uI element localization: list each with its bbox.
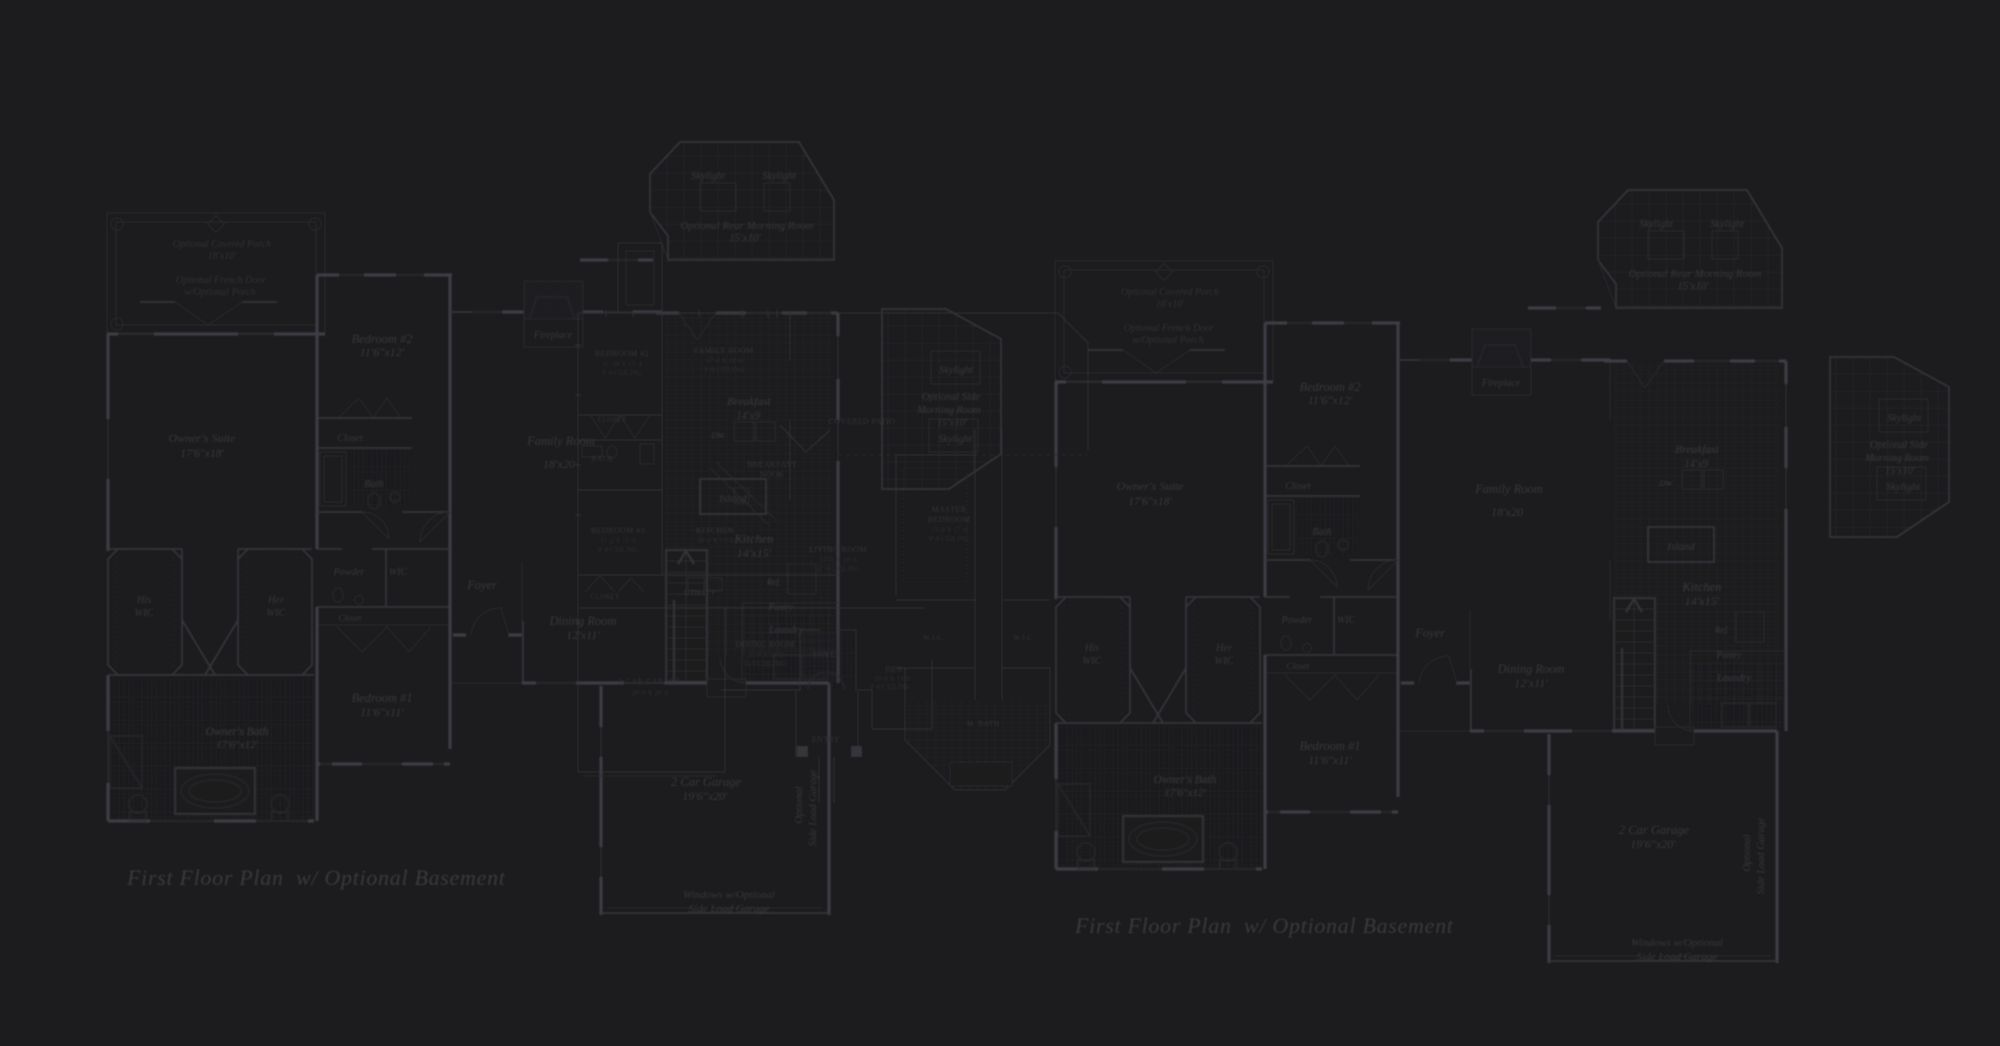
svg-text:9'-0 CEILING: 9'-0 CEILING bbox=[929, 535, 969, 543]
svg-text:BEDROOM: BEDROOM bbox=[928, 515, 971, 524]
svg-text:11'-10 X 13'-4: 11'-10 X 13'-4 bbox=[602, 360, 642, 368]
svg-text:M. BATH: M. BATH bbox=[967, 719, 1000, 728]
svg-text:DINING ROOM: DINING ROOM bbox=[736, 640, 795, 649]
svg-text:9'-0 CEILING: 9'-0 CEILING bbox=[598, 546, 638, 554]
svg-text:BATH: BATH bbox=[591, 454, 612, 463]
svg-text:17'-0 X 19'-0: 17'-0 X 19'-0 bbox=[706, 357, 743, 365]
svg-text:10'-0 X 11'-0: 10'-0 X 11'-0 bbox=[874, 675, 911, 683]
svg-text:9'-0 CEILING: 9'-0 CEILING bbox=[870, 683, 910, 691]
svg-text:NOOK: NOOK bbox=[760, 470, 785, 479]
svg-text:9'-0 CEILING: 9'-0 CEILING bbox=[602, 369, 642, 377]
svg-text:FAMILY ROOM: FAMILY ROOM bbox=[694, 346, 753, 355]
svg-text:13'-0 X 17'-0: 13'-0 X 17'-0 bbox=[931, 526, 968, 534]
svg-text:MASTER: MASTER bbox=[932, 505, 967, 514]
svg-text:11'-0 X 14'-0: 11'-0 X 14'-0 bbox=[747, 651, 784, 659]
svg-text:KITCHEN: KITCHEN bbox=[696, 526, 734, 535]
svg-text:BREAKFAST: BREAKFAST bbox=[747, 460, 797, 469]
svg-text:FOYER: FOYER bbox=[813, 650, 841, 659]
svg-text:W.I.C.: W.I.C. bbox=[1013, 633, 1035, 642]
svg-text:DEN: DEN bbox=[885, 665, 903, 674]
svg-text:11'-2 X 11'-0: 11'-2 X 11'-0 bbox=[600, 537, 637, 545]
svg-text:BEDROOM #2: BEDROOM #2 bbox=[595, 349, 649, 358]
svg-text:20'-0 X 20'-0: 20'-0 X 20'-0 bbox=[632, 689, 669, 697]
svg-text:11'-0 CEILING: 11'-0 CEILING bbox=[816, 565, 860, 573]
svg-text:LIVING ROOM: LIVING ROOM bbox=[809, 545, 867, 554]
svg-text:9'-0 CEILING: 9'-0 CEILING bbox=[704, 366, 744, 374]
svg-text:ENTRY: ENTRY bbox=[812, 735, 840, 744]
svg-text:10'-0 X 13'-0: 10'-0 X 13'-0 bbox=[697, 537, 734, 545]
svg-text:COVERED PATIO: COVERED PATIO bbox=[829, 417, 896, 426]
svg-text:14'-0 X 18'-0: 14'-0 X 18'-0 bbox=[820, 556, 857, 564]
svg-text:CLOSET: CLOSET bbox=[591, 593, 620, 601]
svg-text:W.I.C.: W.I.C. bbox=[923, 633, 945, 642]
svg-text:UTILITY: UTILITY bbox=[684, 588, 717, 597]
svg-text:2 CAR GARAGE: 2 CAR GARAGE bbox=[619, 677, 682, 686]
svg-text:9'-0 CEILING: 9'-0 CEILING bbox=[745, 660, 785, 668]
svg-text:BEDROOM #3: BEDROOM #3 bbox=[591, 526, 645, 535]
svg-text:CLOSET: CLOSET bbox=[598, 416, 627, 424]
